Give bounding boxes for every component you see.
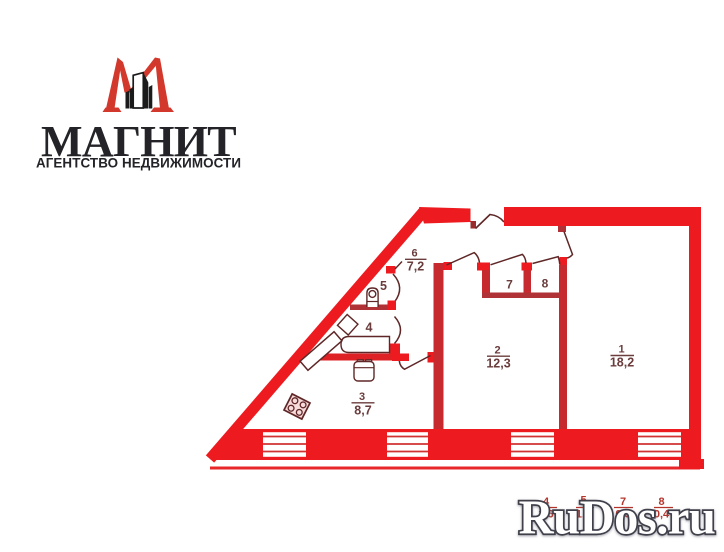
svg-text:3: 3 — [359, 391, 365, 403]
svg-text:2: 2 — [494, 345, 500, 357]
svg-text:5: 5 — [380, 279, 387, 293]
svg-text:18,2: 18,2 — [610, 356, 634, 370]
svg-text:1: 1 — [618, 344, 624, 356]
svg-text:7,2: 7,2 — [407, 260, 424, 274]
svg-text:АГЕНТСТВО НЕДВИЖИМОСТИ: АГЕНТСТВО НЕДВИЖИМОСТИ — [36, 156, 241, 171]
svg-text:RuDos.ru: RuDos.ru — [519, 492, 716, 545]
svg-text:8: 8 — [542, 277, 549, 291]
svg-text:6: 6 — [411, 248, 417, 260]
svg-text:8,7: 8,7 — [354, 404, 371, 418]
svg-text:7: 7 — [506, 278, 513, 292]
svg-text:12,3: 12,3 — [486, 357, 510, 371]
svg-text:4: 4 — [366, 321, 373, 335]
